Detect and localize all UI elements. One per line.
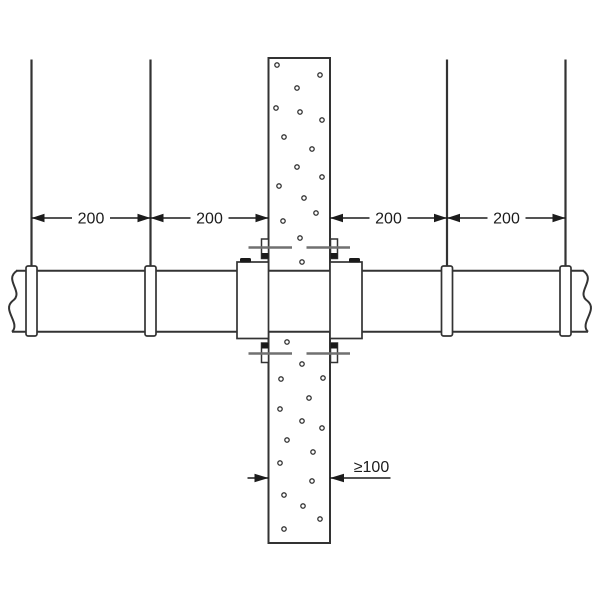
stipple-dot — [300, 260, 304, 264]
stipple-dot — [310, 479, 314, 483]
stipple-dot — [275, 63, 279, 67]
arrow-right-icon — [434, 214, 447, 222]
stipple-dot — [314, 211, 318, 215]
stipple-dot — [285, 438, 289, 442]
arrow-left-icon — [330, 214, 343, 222]
stipple-dot — [300, 362, 304, 366]
dimension-3: 200 — [330, 211, 447, 228]
collar-left — [237, 262, 269, 339]
stipple-dot — [298, 236, 302, 240]
stipple-dot — [279, 377, 283, 381]
stipple-dot — [320, 426, 324, 430]
dim2-label: 200 — [196, 211, 223, 228]
stipple-dot — [300, 419, 304, 423]
stipple-dot — [310, 147, 314, 151]
dimension-4: 200 — [447, 211, 566, 228]
thickness-label: ≥100 — [354, 459, 390, 476]
collar-bolt-left — [240, 258, 251, 263]
stipple-dot — [285, 340, 289, 344]
stipple-dot — [282, 527, 286, 531]
pipe-clamp-4 — [560, 266, 571, 336]
stipple-dot — [282, 493, 286, 497]
stipple-dot — [295, 165, 299, 169]
arrow-left-icon — [32, 214, 45, 222]
stipple-dot — [274, 106, 278, 110]
dim1-label: 200 — [78, 211, 105, 228]
nut-bottom-left — [262, 343, 269, 349]
stipple-dot — [320, 175, 324, 179]
stipple-dot — [281, 219, 285, 223]
stipple-dot — [307, 396, 311, 400]
stipple-dot — [302, 196, 306, 200]
stipple-dot — [277, 184, 281, 188]
stipple-dot — [278, 407, 282, 411]
stipple-dot — [318, 73, 322, 77]
stipple-dot — [320, 118, 324, 122]
collar-right — [330, 262, 362, 339]
arrow-right-icon — [138, 214, 151, 222]
pipe-clamp-1 — [26, 266, 37, 336]
stipple-dot — [321, 376, 325, 380]
stipple-dot — [278, 461, 282, 465]
stipple-dot — [311, 450, 315, 454]
collar-bolt-right — [349, 258, 360, 263]
arrow-left-icon — [151, 214, 164, 222]
technical-drawing: 200 200 200 200 ≥100 — [0, 0, 600, 600]
pipe — [9, 271, 591, 332]
drawing-canvas: 200 200 200 200 ≥100 — [0, 0, 600, 600]
pipe-clamp-3 — [442, 266, 453, 336]
arrow-right-icon — [255, 474, 269, 482]
stipple-dot — [295, 86, 299, 90]
nut-top-right — [331, 253, 338, 259]
arrow-right-icon — [256, 214, 269, 222]
stipple-dot — [282, 135, 286, 139]
nut-top-left — [262, 253, 269, 259]
arrow-left-icon — [330, 474, 344, 482]
stipple-dot — [298, 110, 302, 114]
dimension-1: 200 — [32, 211, 151, 228]
dimension-2: 200 — [151, 211, 269, 228]
pipe-clamp-2 — [145, 266, 156, 336]
arrow-right-icon — [553, 214, 566, 222]
nut-bottom-right — [331, 343, 338, 349]
dim3-label: 200 — [375, 211, 402, 228]
stipple-dot — [301, 504, 305, 508]
stipple-dot — [318, 517, 322, 521]
arrow-left-icon — [447, 214, 460, 222]
dim4-label: 200 — [493, 211, 520, 228]
pipe-body — [13, 272, 587, 332]
